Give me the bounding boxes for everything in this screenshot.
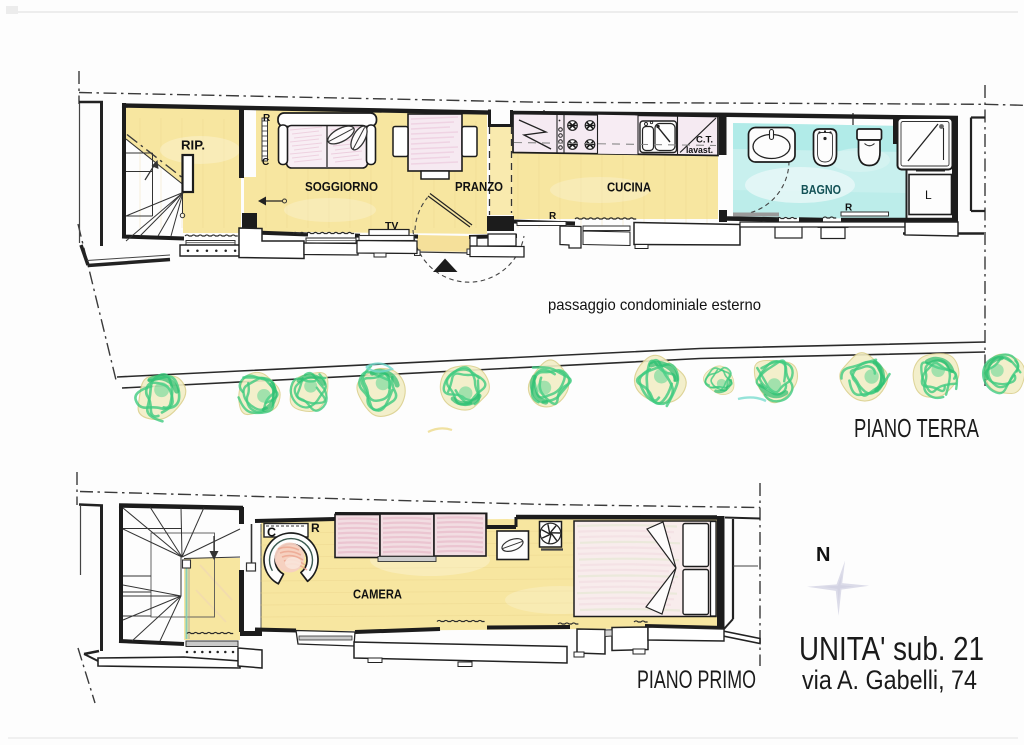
svg-text:via A. Gabelli, 74: via A. Gabelli, 74 — [802, 665, 977, 695]
svg-text:passaggio condominiale esterno: passaggio condominiale esterno — [548, 297, 761, 314]
svg-text:UNITA' sub. 21: UNITA' sub. 21 — [799, 630, 984, 667]
svg-text:BAGNO: BAGNO — [801, 182, 841, 197]
svg-text:CUCINA: CUCINA — [607, 180, 652, 195]
svg-text:PRANZO: PRANZO — [455, 179, 503, 194]
svg-text:C.T.: C.T. — [696, 135, 713, 145]
svg-text:CAMERA: CAMERA — [353, 587, 403, 602]
svg-text:R: R — [311, 521, 320, 535]
svg-text:SOGGIORNO: SOGGIORNO — [305, 179, 378, 194]
svg-text:RIP.: RIP. — [181, 138, 205, 153]
svg-text:PIANO TERRA: PIANO TERRA — [854, 413, 979, 443]
svg-text:L: L — [925, 188, 932, 202]
svg-text:N: N — [816, 544, 830, 566]
svg-text:R: R — [549, 211, 557, 222]
svg-text:C: C — [262, 157, 269, 168]
svg-text:lavast.: lavast. — [686, 145, 713, 155]
svg-text:PIANO PRIMO: PIANO PRIMO — [637, 666, 756, 694]
svg-text:R: R — [263, 113, 271, 124]
